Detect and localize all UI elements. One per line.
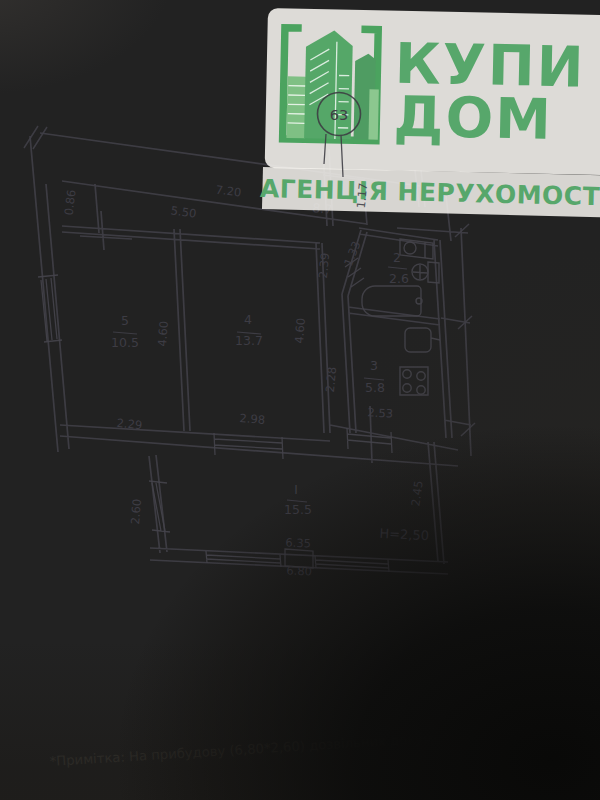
room1-number: I: [294, 483, 298, 497]
dim-inner-width: 5.50: [170, 203, 197, 220]
ceiling-height-label: H=2,50: [379, 526, 429, 544]
bathtub-icon: [362, 286, 421, 316]
room5-area: 10.5: [111, 335, 139, 350]
dim-niche-depth: 0.86: [62, 189, 79, 216]
dim-hall-upper: 2.39: [316, 252, 333, 279]
dim-veranda-outer: 6.80: [286, 564, 312, 579]
dim-hall-lower: 2.28: [323, 366, 340, 393]
agency-subtitle: АГЕНЦІЯ НЕРУХОМОСТІ: [260, 173, 600, 211]
plan-labels: 7.20 5.50 0.86 8.7 2.39 1.33 2 2.6 4.60 …: [62, 183, 430, 579]
sink-basin-icon: [404, 242, 416, 254]
room2-number: 2: [393, 250, 401, 265]
room4-number: 4: [244, 312, 252, 327]
room4-area: 13.7: [235, 333, 263, 348]
dim-veranda-inner: 6.35: [285, 536, 311, 551]
logo-title-line2: ДОМ: [393, 91, 585, 148]
room3-number: 3: [370, 358, 378, 373]
agency-subtitle-band: АГЕНЦІЯ НЕРУХОМОСТІ: [262, 167, 600, 217]
logo-title: КУПИ ДОМ: [393, 38, 586, 147]
dim-room4-width: 2.98: [239, 411, 266, 427]
room3-area: 5.8: [365, 380, 385, 395]
kitchen-fixtures: [400, 328, 440, 395]
note-text: *Примітка: На прибудову (6,80*2,60) дозв…: [49, 729, 465, 769]
dim-room4-depth: 4.60: [292, 317, 308, 344]
kitchen-sink-icon: [405, 328, 440, 352]
dim-kitchen-width: 2.53: [367, 405, 393, 420]
agency-logo: КУПИ ДОМ: [265, 8, 600, 175]
floor-plan-photo: 7.20 5.50 0.86 8.7 2.39 1.33 2 2.6 4.60 …: [0, 0, 600, 800]
dim-room5-width: 2.29: [116, 416, 143, 433]
dim-room5-depth: 4.60: [155, 320, 171, 347]
room5-number: 5: [121, 313, 129, 328]
dim-overall-width: 7.20: [215, 183, 242, 200]
window-hatches: [38, 258, 392, 572]
building-icon: [273, 16, 388, 162]
room2-area: 2.6: [389, 271, 409, 286]
dim-veranda-right: 2.45: [408, 480, 425, 507]
room1-area: 15.5: [284, 502, 312, 517]
dim-veranda-left: 2.60: [128, 498, 144, 525]
